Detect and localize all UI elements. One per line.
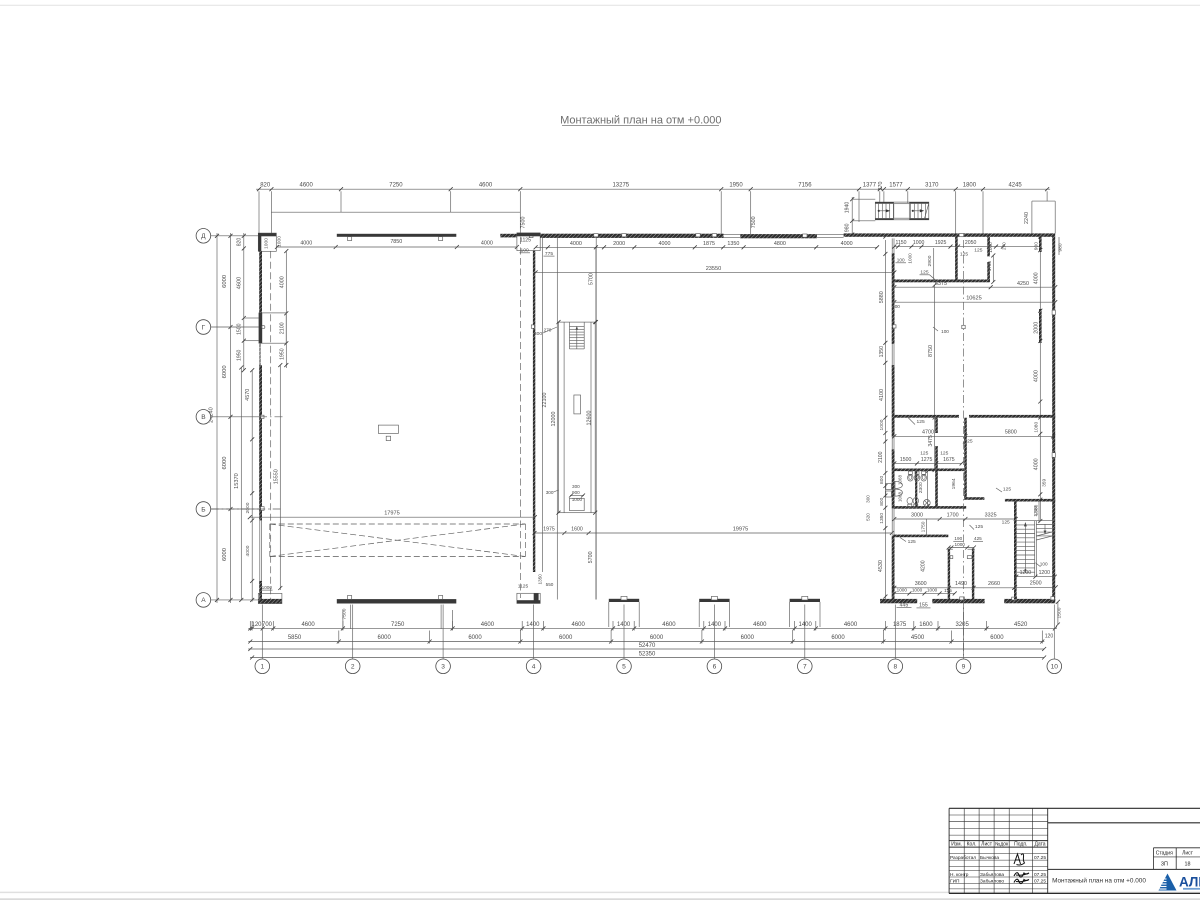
svg-text:700: 700 [262,622,273,628]
svg-text:4000: 4000 [659,241,671,247]
svg-text:1750: 1750 [921,521,927,532]
svg-text:5700: 5700 [588,551,594,563]
svg-text:5: 5 [622,664,626,671]
svg-text:15550: 15550 [274,469,280,484]
svg-text:520: 520 [866,513,871,521]
svg-text:4520: 4520 [1014,622,1028,628]
svg-text:1080: 1080 [1034,421,1040,432]
svg-text:6000: 6000 [222,274,228,288]
svg-text:1125: 1125 [520,237,531,243]
svg-text:800: 800 [879,476,885,484]
svg-text:1875: 1875 [703,241,715,247]
svg-text:120: 120 [1045,634,1054,640]
svg-text:7250: 7250 [391,622,405,628]
svg-text:Разработал: Разработал [950,855,976,861]
svg-text:1600: 1600 [571,526,583,532]
svg-text:4600: 4600 [301,622,315,628]
svg-text:1350: 1350 [879,513,885,524]
svg-text:270: 270 [1001,242,1006,250]
svg-text:1500: 1500 [1057,607,1063,618]
svg-text:3325: 3325 [985,512,997,518]
svg-text:2900: 2900 [927,255,933,266]
svg-text:Д: Д [201,233,206,240]
svg-text:300: 300 [546,490,554,495]
svg-text:300: 300 [534,331,542,337]
svg-text:07.25: 07.25 [1034,855,1046,861]
svg-text:2100: 2100 [878,451,884,463]
svg-text:22100: 22100 [542,393,548,408]
svg-text:2660: 2660 [988,581,1000,587]
svg-text:1577: 1577 [889,183,903,189]
svg-text:1000: 1000 [879,419,885,430]
svg-text:1400: 1400 [708,622,722,628]
svg-text:2300: 2300 [918,482,924,493]
svg-text:Дата: Дата [1034,842,1045,848]
svg-text:4245: 4245 [1008,183,1022,189]
svg-text:6000: 6000 [559,635,573,641]
svg-text:12000: 12000 [551,412,557,427]
svg-text:1275: 1275 [921,457,933,463]
svg-text:1940: 1940 [844,202,850,214]
svg-text:820: 820 [260,183,271,189]
svg-text:4000: 4000 [570,241,582,247]
svg-text:7250: 7250 [389,183,403,189]
svg-text:190: 190 [954,536,962,541]
svg-text:359: 359 [1042,479,1047,487]
svg-text:Бычкова: Бычкова [980,855,999,861]
svg-text:1000: 1000 [912,588,923,593]
svg-text:120: 120 [252,622,263,628]
svg-text:№док: №док [995,842,1009,848]
svg-text:6000: 6000 [468,635,482,641]
svg-text:7500: 7500 [751,216,757,228]
svg-text:270: 270 [878,182,884,191]
svg-text:52350: 52350 [639,651,656,657]
svg-text:4600: 4600 [753,622,767,628]
svg-text:1964: 1964 [951,478,957,489]
svg-text:4: 4 [532,664,536,671]
svg-text:6: 6 [713,664,717,671]
svg-text:5800: 5800 [1005,430,1017,436]
svg-text:4530: 4530 [878,560,884,572]
svg-text:4000: 4000 [841,241,853,247]
svg-text:10: 10 [1051,664,1059,671]
svg-text:300: 300 [866,495,871,503]
svg-text:4600: 4600 [300,183,314,189]
svg-text:7: 7 [803,664,807,671]
svg-text:1000: 1000 [572,497,583,502]
svg-text:19975: 19975 [733,526,749,532]
svg-text:17975: 17975 [384,511,400,517]
svg-text:2000: 2000 [613,241,625,247]
svg-text:125: 125 [974,247,982,253]
svg-text:1200: 1200 [1039,570,1051,576]
svg-text:Н. контр: Н. контр [950,872,969,878]
svg-text:1400: 1400 [526,622,540,628]
svg-text:125: 125 [908,539,916,545]
svg-text:3205: 3205 [956,622,970,628]
svg-text:125: 125 [944,588,952,593]
svg-text:7156: 7156 [798,183,812,189]
svg-text:125: 125 [1002,519,1010,525]
svg-text:6000: 6000 [831,635,845,641]
svg-text:07.25: 07.25 [1034,872,1046,878]
svg-text:2000: 2000 [245,502,251,513]
svg-text:1377: 1377 [863,183,877,189]
svg-text:980: 980 [844,223,850,232]
svg-text:6000: 6000 [990,635,1004,641]
svg-text:3600: 3600 [915,581,927,587]
svg-text:125: 125 [940,450,948,456]
svg-text:1000: 1000 [897,588,908,593]
svg-text:АЛЬЯ: АЛЬЯ [1179,875,1200,890]
svg-text:1: 1 [260,664,264,671]
svg-text:1300: 1300 [1033,506,1039,517]
svg-text:8750: 8750 [928,345,934,357]
svg-text:6000: 6000 [650,635,664,641]
svg-text:1000: 1000 [908,253,913,264]
svg-text:7850: 7850 [390,239,402,245]
svg-text:1000: 1000 [264,238,270,249]
svg-text:4570: 4570 [245,389,251,401]
svg-text:4600: 4600 [572,622,586,628]
svg-text:2050: 2050 [965,240,977,246]
svg-text:5700: 5700 [589,273,595,285]
svg-text:4000: 4000 [280,276,286,288]
svg-text:3000: 3000 [911,512,923,518]
svg-text:1600: 1600 [919,622,933,628]
svg-text:4600: 4600 [479,183,493,189]
svg-text:13275: 13275 [612,183,629,189]
svg-text:6375: 6375 [935,281,947,287]
svg-text:4200: 4200 [921,560,927,572]
svg-text:Г: Г [202,324,206,331]
svg-text:100: 100 [897,258,905,263]
svg-text:1125: 1125 [518,584,529,590]
svg-text:4000: 4000 [245,545,251,556]
svg-text:3170: 3170 [925,183,939,189]
svg-text:125: 125 [975,524,983,530]
svg-text:1000: 1000 [927,588,938,593]
svg-text:125: 125 [917,419,925,425]
svg-text:4600: 4600 [662,622,676,628]
svg-text:900: 900 [1034,242,1040,250]
svg-text:4600: 4600 [844,622,858,628]
svg-text:1068: 1068 [898,492,903,502]
svg-text:6000: 6000 [222,547,228,561]
svg-text:125: 125 [960,252,968,258]
svg-text:6000: 6000 [222,456,228,470]
svg-text:425: 425 [974,536,982,541]
svg-text:2500: 2500 [1030,581,1042,587]
svg-text:1950: 1950 [280,348,286,360]
svg-text:1490: 1490 [955,581,967,587]
svg-text:820: 820 [237,238,243,247]
svg-text:1350: 1350 [537,574,542,585]
svg-text:4600: 4600 [237,277,243,289]
svg-text:1000: 1000 [955,542,966,547]
svg-text:2000: 2000 [1034,322,1040,334]
svg-text:125: 125 [1003,487,1011,493]
svg-text:6000: 6000 [741,635,755,641]
svg-text:7500: 7500 [521,217,527,229]
svg-text:4000: 4000 [1034,458,1040,470]
svg-text:1950: 1950 [729,183,743,189]
svg-text:Изм.: Изм. [951,842,962,848]
svg-text:15370: 15370 [234,473,240,489]
svg-text:07.25: 07.25 [1034,878,1046,884]
svg-text:Монтажный план на отм +0.000: Монтажный план на отм +0.000 [1052,876,1146,884]
svg-text:100: 100 [892,304,900,309]
svg-text:ЗП: ЗП [1161,861,1168,867]
svg-text:Стадия: Стадия [1156,850,1173,856]
svg-text:125: 125 [920,450,928,456]
svg-text:2: 2 [351,664,355,671]
svg-text:1800: 1800 [963,183,977,189]
svg-text:1675: 1675 [943,457,955,463]
svg-text:900: 900 [572,490,580,495]
svg-text:1975: 1975 [543,526,555,532]
svg-text:Подп.: Подп. [1014,842,1027,848]
svg-text:9: 9 [962,664,966,671]
svg-text:Монтажный план на отм +0.000: Монтажный план на отм +0.000 [560,115,721,127]
svg-text:980: 980 [1058,243,1064,251]
svg-text:Лист: Лист [1182,850,1194,856]
svg-text:4000: 4000 [1034,272,1040,284]
svg-text:4600: 4600 [481,622,495,628]
svg-text:23550: 23550 [706,266,722,272]
svg-text:4000: 4000 [300,241,312,247]
svg-text:1350: 1350 [727,241,739,247]
svg-text:100: 100 [941,329,949,334]
svg-text:1200: 1200 [1020,570,1032,576]
svg-text:4000: 4000 [1034,370,1040,382]
svg-text:3: 3 [441,664,445,671]
svg-text:52470: 52470 [639,643,656,649]
svg-text:Б: Б [201,506,205,513]
svg-text:Забьялова: Забьялова [980,872,1004,878]
svg-text:1150: 1150 [895,240,906,246]
svg-text:1350: 1350 [879,346,885,358]
svg-text:300: 300 [572,484,580,489]
svg-text:3475: 3475 [928,435,934,447]
svg-text:800: 800 [879,497,885,505]
svg-text:1700: 1700 [947,512,959,518]
svg-text:1950: 1950 [237,349,243,361]
svg-text:1000: 1000 [277,236,283,247]
svg-text:6000: 6000 [222,365,228,379]
svg-text:В: В [201,414,206,421]
svg-text:4700: 4700 [922,430,934,436]
svg-text:550: 550 [546,582,554,587]
svg-text:4800: 4800 [774,241,786,247]
svg-text:2240: 2240 [1024,212,1030,224]
svg-text:4000: 4000 [481,241,493,247]
svg-text:1000: 1000 [913,240,925,246]
svg-text:4100: 4100 [879,389,885,401]
svg-text:1500: 1500 [900,457,912,463]
svg-text:А: А [201,597,206,604]
svg-text:Забьялово: Забьялово [980,878,1004,884]
svg-text:6000: 6000 [378,635,392,641]
svg-text:Лист: Лист [981,842,993,848]
svg-text:5850: 5850 [288,635,302,641]
svg-text:2100: 2100 [280,322,286,334]
svg-text:5880: 5880 [879,291,885,303]
svg-text:10625: 10625 [966,296,982,302]
svg-text:1400: 1400 [799,622,813,628]
svg-text:12600: 12600 [587,411,593,426]
svg-text:100: 100 [1040,561,1048,566]
svg-text:1500: 1500 [237,323,243,335]
svg-text:1000: 1000 [988,242,993,253]
svg-text:4500: 4500 [911,635,925,641]
svg-text:Кол.: Кол. [967,842,977,848]
svg-text:1755: 1755 [987,261,992,272]
svg-text:1068: 1068 [898,475,903,485]
svg-text:1925: 1925 [935,240,947,246]
svg-text:18: 18 [1185,861,1191,867]
svg-text:4250: 4250 [1017,281,1029,287]
svg-text:7500: 7500 [342,608,348,619]
svg-text:8: 8 [893,664,897,671]
svg-text:ГИП: ГИП [950,878,960,884]
